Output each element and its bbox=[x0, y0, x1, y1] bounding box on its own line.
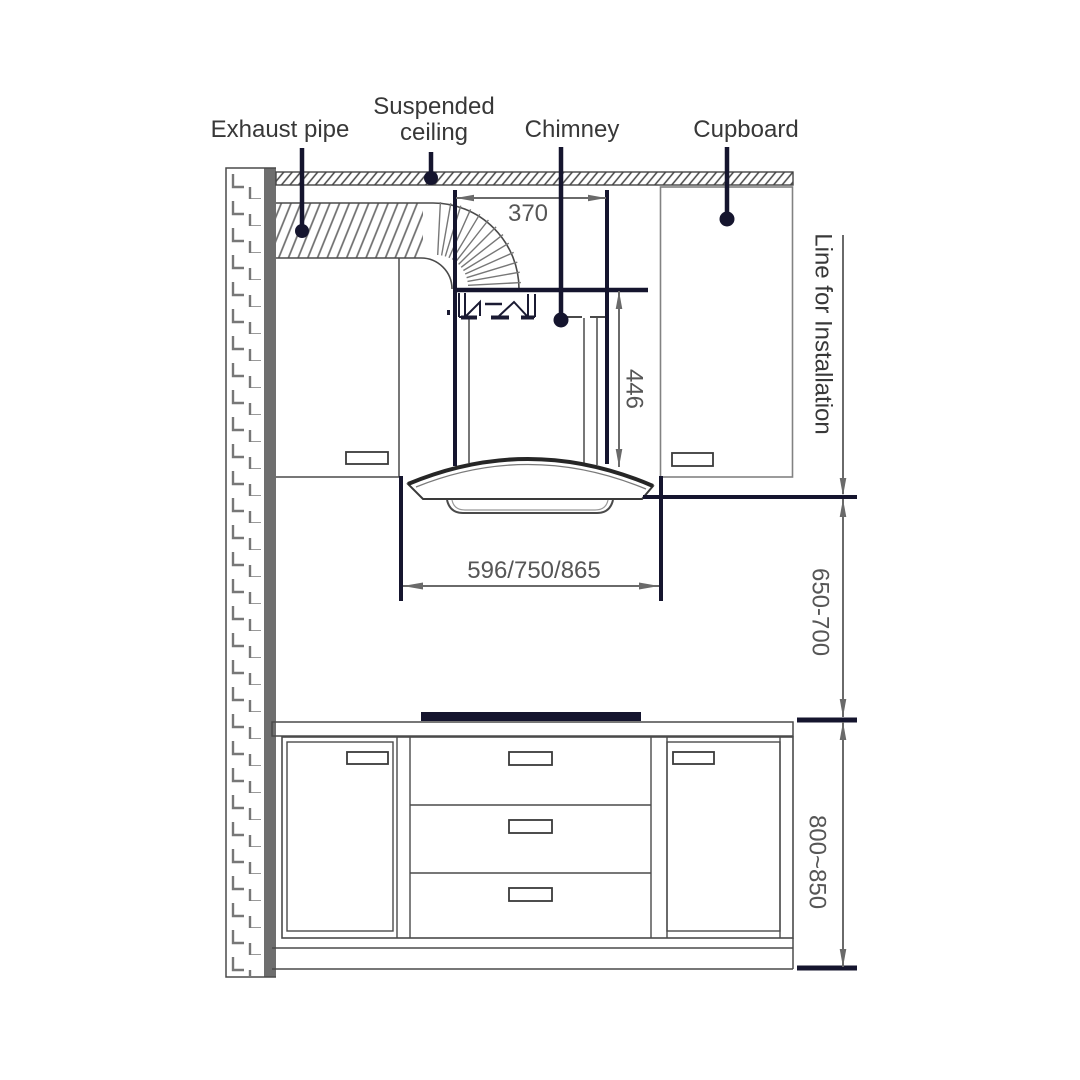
plinth bbox=[272, 938, 793, 969]
dim-counter-height-text: 800~850 bbox=[804, 815, 831, 909]
left-door-handle bbox=[347, 752, 388, 764]
elbow-inner-arc bbox=[421, 258, 452, 289]
cooktop bbox=[421, 712, 641, 721]
cupboard-handle bbox=[672, 453, 713, 466]
suspended-ceiling-label-line2: ceiling bbox=[400, 119, 468, 146]
drawer-bank bbox=[410, 752, 651, 901]
drawer-1-handle bbox=[509, 752, 552, 765]
base-cabinet-left-door bbox=[287, 742, 393, 931]
chimney-hood bbox=[408, 459, 653, 513]
cupboard bbox=[661, 187, 793, 477]
base-cabinet-carcass bbox=[282, 737, 793, 938]
drawer-2-handle bbox=[509, 820, 552, 833]
exhaust-pipe-label: Exhaust pipe bbox=[211, 116, 350, 143]
installation-diagram: 370 446 596/750/865 Line for Installatio… bbox=[0, 0, 1080, 1080]
suspended-ceiling-leader-dot bbox=[424, 171, 438, 185]
countertop bbox=[272, 722, 793, 736]
suspended-ceiling-label-line1: Suspended bbox=[373, 93, 494, 120]
hood-tray bbox=[447, 500, 613, 513]
diagram-canvas: 370 446 596/750/865 Line for Installatio… bbox=[0, 0, 1080, 1080]
wall bbox=[226, 168, 276, 977]
labels: Exhaust pipe Suspended ceiling Chimney C… bbox=[211, 93, 799, 146]
drawer-3-handle bbox=[509, 888, 552, 901]
dimension-446: 446 bbox=[616, 291, 648, 467]
cupboard-outline bbox=[661, 187, 793, 477]
base-cabinet bbox=[272, 722, 793, 969]
wall-cabinet-left-handle bbox=[346, 452, 388, 464]
dimension-hood-width: 596/750/865 bbox=[403, 557, 659, 590]
right-door-handle bbox=[673, 752, 714, 764]
dim-370-text: 370 bbox=[508, 200, 548, 227]
line-for-installation: Line for Installation bbox=[810, 233, 847, 496]
dim-hood-width-text: 596/750/865 bbox=[467, 557, 600, 584]
suspended-ceiling bbox=[276, 172, 793, 185]
dim-446-text: 446 bbox=[621, 369, 648, 409]
dim-hood-to-counter-text: 650-700 bbox=[807, 568, 834, 656]
dimension-counter-height: 800~850 bbox=[804, 722, 847, 967]
ceiling-band bbox=[276, 172, 793, 185]
wall-cabinet-left bbox=[276, 258, 399, 477]
damper-detail bbox=[447, 293, 535, 318]
dimension-hood-to-counter: 650-700 bbox=[807, 499, 847, 717]
chimney-duct-lines bbox=[469, 318, 597, 465]
line-for-installation-label: Line for Installation bbox=[810, 233, 837, 434]
wall-brick-pattern bbox=[227, 172, 264, 976]
dimension-370: 370 bbox=[456, 195, 606, 227]
exhaust-pipe-leader-dot bbox=[295, 224, 309, 238]
elbow-outer-arc bbox=[433, 203, 519, 289]
chimney-leader-dot bbox=[554, 313, 569, 328]
cupboard-leader-dot bbox=[720, 212, 735, 227]
wall-cabinet-left-outline bbox=[276, 258, 399, 477]
damper-left-pin bbox=[447, 310, 450, 315]
chimney-duct bbox=[469, 317, 605, 465]
chimney-label: Chimney bbox=[525, 116, 620, 143]
base-cabinet-right-door bbox=[667, 742, 780, 931]
wall-inner-face bbox=[264, 168, 276, 977]
cupboard-label: Cupboard bbox=[693, 116, 798, 143]
